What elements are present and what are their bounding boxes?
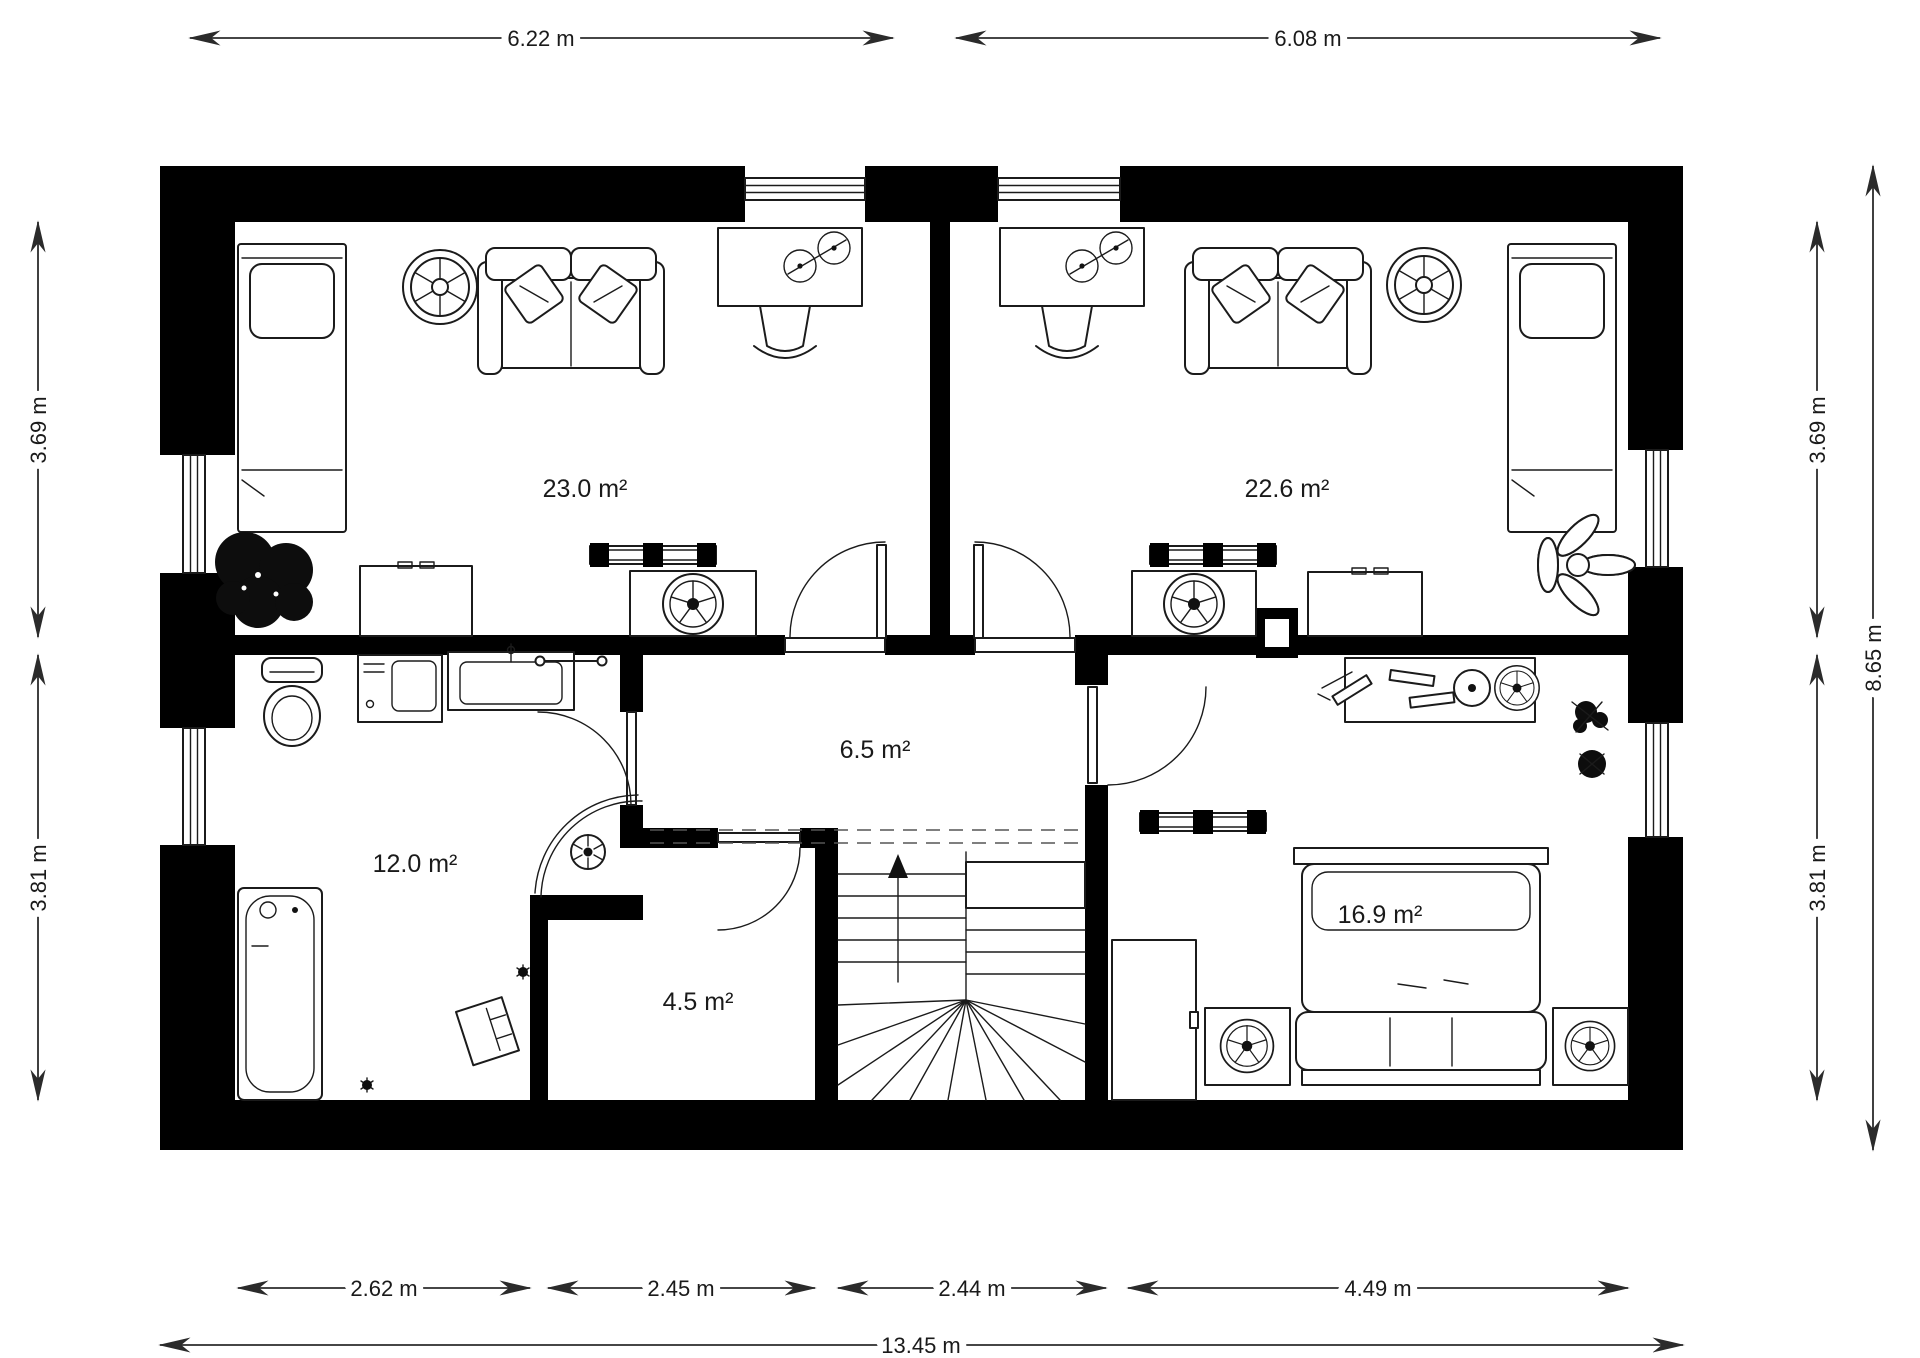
dim-top-right: 6.08 m <box>1274 26 1341 51</box>
floor-plan-page: 23.0 m² 22.6 m² 12.0 m² 6.5 m² 4.5 m² 16… <box>0 0 1920 1358</box>
dim-bottom-total: 13.45 m <box>881 1333 961 1358</box>
room-label-bedroom-bottom: 16.9 m² <box>1338 901 1423 929</box>
dressing-table-icon <box>1318 658 1539 722</box>
cabinet-fan-icon <box>630 571 756 636</box>
room-label-hallway: 6.5 m² <box>840 736 911 764</box>
dim-bottom-3: 2.44 m <box>938 1276 1005 1301</box>
double-bed-icon <box>1294 848 1548 1085</box>
furniture-bedroom-left <box>215 228 862 636</box>
furniture-bedroom-right <box>1000 228 1635 636</box>
floor-plan: 23.0 m² 22.6 m² 12.0 m² 6.5 m² 4.5 m² 16… <box>0 0 1920 1358</box>
plant-tree-icon <box>215 532 313 628</box>
wheel-decor-icon <box>403 250 477 324</box>
window-right-lower <box>1646 723 1668 837</box>
door-bedroom-right <box>974 542 1075 652</box>
dim-right-total: 8.65 m <box>1861 624 1886 691</box>
washing-machine-icon <box>358 655 442 722</box>
sink-icon <box>448 644 574 710</box>
door-bathroom <box>538 712 636 805</box>
window-top-left <box>745 178 865 200</box>
window-left-lower <box>183 728 205 845</box>
door-bedroom-bottom <box>1088 687 1206 785</box>
dim-right-lower: 3.81 m <box>1805 844 1830 911</box>
dresser-icon <box>1308 568 1422 636</box>
sofa-icon <box>1185 248 1371 374</box>
single-bed-icon <box>1508 244 1616 532</box>
radiator-icon <box>1150 543 1276 567</box>
dresser-icon <box>360 562 472 636</box>
window-left-upper <box>183 455 205 573</box>
dim-top-left: 6.22 m <box>507 26 574 51</box>
wheel-decor-icon <box>1387 248 1461 322</box>
dim-bottom-1: 2.62 m <box>350 1276 417 1301</box>
dim-left-lower: 3.81 m <box>26 844 51 911</box>
bathtub-icon <box>238 888 322 1100</box>
staircase <box>650 830 1085 1100</box>
nightstand-icon <box>1205 1008 1290 1085</box>
dim-bottom-2: 2.45 m <box>647 1276 714 1301</box>
dim-bottom-4: 4.49 m <box>1344 1276 1411 1301</box>
furniture-bedroom-bottom <box>1112 658 1628 1100</box>
desk-icon <box>718 228 862 358</box>
dim-left-upper: 3.69 m <box>26 396 51 463</box>
single-bed-icon <box>238 244 346 532</box>
room-label-bedroom-left: 23.0 m² <box>543 475 628 503</box>
desk-icon <box>1000 228 1144 358</box>
sofa-icon <box>478 248 664 374</box>
wardrobe-icon <box>1112 940 1198 1100</box>
room-label-bedroom-right: 22.6 m² <box>1245 475 1330 503</box>
toilet-icon <box>262 658 322 746</box>
cabinet-fan-icon <box>1132 571 1256 636</box>
dim-right-upper: 3.69 m <box>1805 396 1830 463</box>
window-top-right <box>998 178 1120 200</box>
nightstand-icon <box>1553 1008 1628 1085</box>
door-storage <box>718 833 800 930</box>
room-label-storage: 4.5 m² <box>663 988 734 1016</box>
door-bedroom-left <box>785 542 886 652</box>
radiator-icon <box>590 543 716 567</box>
room-label-bathroom: 12.0 m² <box>373 850 458 878</box>
plant-cactus-icon <box>1572 701 1608 778</box>
window-right-upper <box>1646 450 1668 567</box>
stool-icon <box>456 997 519 1065</box>
radiator-icon <box>1140 810 1266 834</box>
